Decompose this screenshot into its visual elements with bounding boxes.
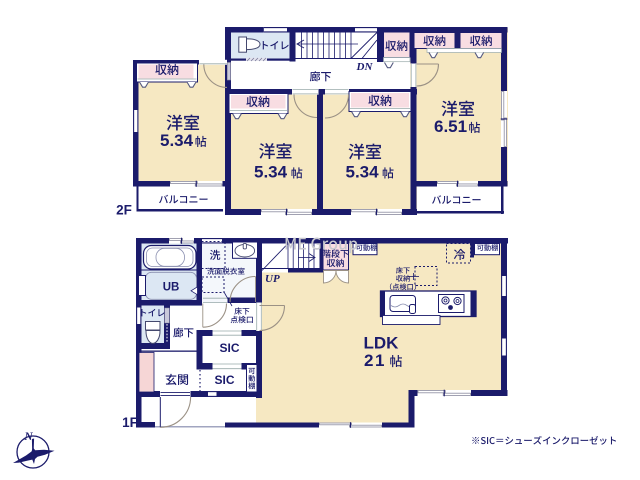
svg-text:2F: 2F: [116, 203, 132, 218]
svg-text:UB: UB: [163, 282, 180, 294]
svg-text:SIC: SIC: [214, 373, 234, 387]
svg-text:SIC: SIC: [219, 341, 239, 355]
svg-text:5.34: 5.34: [160, 131, 194, 150]
svg-text:UP: UP: [265, 273, 280, 285]
svg-text:21: 21: [364, 351, 386, 370]
svg-text:5.34: 5.34: [346, 163, 380, 182]
svg-text:6.51: 6.51: [434, 117, 467, 136]
svg-text:DN: DN: [356, 61, 374, 73]
svg-text:N: N: [23, 431, 33, 443]
svg-text:5.34: 5.34: [254, 163, 288, 182]
svg-text:1F: 1F: [122, 415, 138, 430]
svg-text:LDK: LDK: [364, 334, 400, 353]
